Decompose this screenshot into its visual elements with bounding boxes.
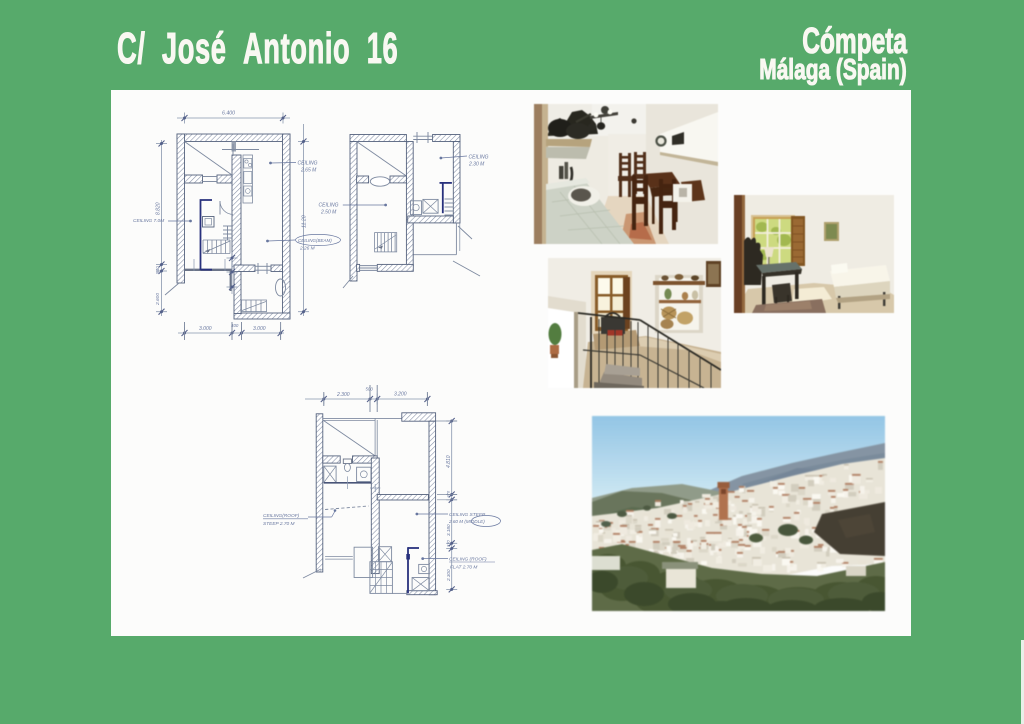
svg-text:2.300: 2.300 xyxy=(336,392,350,398)
svg-text:11.20: 11.20 xyxy=(302,215,308,228)
svg-text:FLAT 2.70 M: FLAT 2.70 M xyxy=(450,565,477,571)
svg-text:CEILING 7.0M: CEILING 7.0M xyxy=(133,218,164,224)
svg-text:4.810: 4.810 xyxy=(446,455,452,468)
svg-text:CEILING: CEILING xyxy=(298,161,318,167)
svg-text:2.65 M: 2.65 M xyxy=(300,168,317,174)
svg-text:370: 370 xyxy=(446,540,451,547)
svg-text:CEILING STEEP: CEILING STEEP xyxy=(449,512,486,518)
svg-text:3.200: 3.200 xyxy=(394,392,407,398)
svg-text:STEEP 2.70 M: STEEP 2.70 M xyxy=(263,521,295,527)
svg-text:540: 540 xyxy=(155,266,160,274)
svg-text:CEILING: CEILING xyxy=(319,203,339,209)
svg-text:2.26 M: 2.26 M xyxy=(299,246,315,252)
svg-text:370: 370 xyxy=(446,490,451,497)
svg-text:CEILING (ROOF): CEILING (ROOF) xyxy=(449,557,487,563)
svg-text:8.820: 8.820 xyxy=(156,202,162,215)
svg-text:6.400: 6.400 xyxy=(222,111,235,117)
svg-text:CEILING: CEILING xyxy=(469,155,489,161)
svg-text:2.300: 2.300 xyxy=(446,569,451,582)
svg-text:CEILING(ROOF): CEILING(ROOF) xyxy=(263,513,300,519)
svg-text:2.50 M: 2.50 M xyxy=(320,210,337,216)
svg-text:3.000: 3.000 xyxy=(253,326,266,332)
svg-text:2.600: 2.600 xyxy=(155,293,161,306)
svg-text:2.60 M (MIDDLE): 2.60 M (MIDDLE) xyxy=(448,519,485,524)
svg-text:500: 500 xyxy=(366,387,374,392)
svg-text:2.30 M: 2.30 M xyxy=(468,162,485,168)
svg-text:3.180: 3.180 xyxy=(446,524,451,536)
svg-text:3.000: 3.000 xyxy=(199,326,212,332)
svg-text:CEILING(BEAM): CEILING(BEAM) xyxy=(298,238,332,243)
